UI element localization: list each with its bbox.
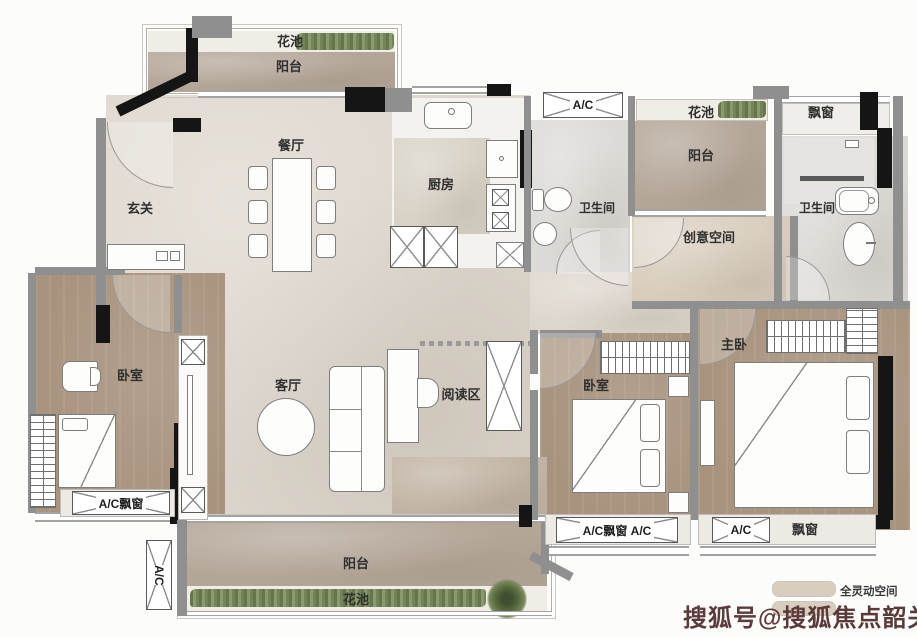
bedroom-left-label: 卧室 — [117, 369, 143, 384]
window-balcony-bottom-rail — [184, 611, 552, 616]
kitchen-label: 厨房 — [428, 178, 454, 193]
washbasin-icon — [843, 222, 875, 266]
wall-kitchen-topright — [487, 84, 511, 96]
reading-label: 阅读区 — [441, 388, 480, 403]
bookshelf — [486, 341, 522, 431]
desk-chair — [90, 367, 101, 386]
counter-knob — [499, 156, 504, 161]
pillow-icon — [846, 376, 870, 420]
flower-bed-top-right-label: 花池 — [688, 106, 714, 121]
sofa — [329, 366, 385, 492]
legend-flex-space-label: 全灵动空间 — [840, 583, 898, 599]
ac-top-label: A/C — [570, 98, 597, 112]
pillow-icon — [640, 404, 660, 442]
pillow-icon — [846, 430, 870, 474]
balcony-top-right-floor — [632, 121, 766, 214]
kitchen-cabinet-hatch — [390, 226, 424, 268]
chair — [316, 166, 336, 190]
chair — [316, 200, 336, 224]
wardrobe — [766, 320, 846, 353]
window-dining-balcony — [198, 90, 346, 98]
wall-entry-bedroom-corner — [96, 305, 110, 343]
ac-unit-top: A/C — [543, 92, 623, 118]
wardrobe — [846, 308, 878, 354]
window-living-balcony — [185, 515, 545, 523]
creative-space-label: 创意空间 — [683, 231, 735, 246]
tv-panel — [187, 375, 193, 475]
floor-plan: A/C A/C飘窗 A/C A/C飘窗 A/C A/C 飘窗 花池 阳台 餐厅 … — [0, 0, 917, 637]
basin-faucet — [866, 242, 876, 244]
ac-left-vertical-label: A/C — [149, 565, 169, 586]
hedge-plants-bottom — [190, 589, 486, 607]
wall-bath-right-left — [774, 96, 782, 302]
pillow-icon — [62, 418, 88, 431]
burner-icon — [492, 189, 509, 206]
bay-window-top-right-label: 飘窗 — [808, 106, 834, 121]
wall-block — [385, 88, 412, 112]
window-bedroom-middle-bottom — [545, 546, 689, 556]
bay-window-bottom-right-label: 飘窗 — [792, 523, 818, 538]
wardrobe — [30, 414, 56, 508]
master-bedroom-label: 主卧 — [721, 338, 747, 353]
ac-bay-left-label: A/C飘窗 — [96, 495, 147, 512]
reading-chair — [417, 378, 439, 408]
shower-divider — [800, 176, 864, 181]
ac-unit-bay-left: A/C飘窗 — [72, 491, 170, 515]
cabinet-hatch — [181, 487, 205, 513]
burner-icon — [492, 212, 509, 229]
living-label: 客厅 — [275, 379, 301, 394]
ac-unit-bottom-right: A/C — [712, 517, 770, 543]
balcony-bottom-label: 阳台 — [343, 557, 369, 572]
cabinet-hatch — [181, 339, 205, 365]
bathtub-inner — [839, 190, 869, 212]
dining-label: 餐厅 — [278, 139, 304, 154]
bathroom-right-label: 卫生间 — [799, 202, 835, 216]
round-table — [257, 398, 315, 456]
balcony-bottom-floor — [185, 522, 547, 586]
tub-knob — [868, 197, 875, 204]
shower-handle — [845, 140, 859, 148]
ac-mid-label: A/C — [631, 524, 652, 538]
kitchen-door — [496, 242, 524, 268]
wall-bedroom-living-1 — [174, 275, 182, 333]
wall-block-tr — [753, 86, 789, 99]
pillow-icon — [640, 449, 660, 487]
wall-hall-bedroom2-b — [530, 390, 538, 520]
window-balcony-top-right — [632, 209, 766, 217]
dining-table — [272, 158, 312, 272]
watermark-sohu: 搜狐号@搜狐焦点韶关站 — [683, 598, 917, 633]
wardrobe — [600, 341, 690, 374]
ac-unit-bay-mid: A/C飘窗 A/C — [556, 517, 678, 543]
wall-master-right — [878, 356, 893, 520]
chair — [248, 166, 268, 190]
wall-block-top — [192, 16, 232, 38]
wall-bedroom2-master — [690, 308, 698, 520]
bathroom-center-label: 卫生间 — [579, 202, 615, 216]
flower-bed-top-left-label: 花池 — [277, 35, 303, 50]
cabinet-detail — [156, 251, 168, 261]
wall-right-outer — [893, 96, 903, 302]
entry-label: 玄关 — [127, 202, 153, 217]
cabinet-detail — [170, 251, 180, 261]
nightstand — [668, 492, 689, 513]
bench — [700, 400, 715, 466]
wall-hall-bedroom2-a — [530, 330, 538, 374]
ac-unit-left-vertical: A/C — [146, 540, 172, 610]
washbasin-icon — [533, 222, 557, 246]
nightstand — [668, 376, 689, 397]
reading-desk — [387, 349, 419, 443]
window-master-bottom — [700, 546, 876, 556]
kitchen-cabinet-hatch — [424, 226, 458, 268]
faucet-icon — [448, 108, 455, 115]
chair — [316, 234, 336, 258]
kitchen-sink-icon — [424, 102, 472, 129]
ac-right-label: A/C — [728, 523, 755, 537]
ac-bay-mid-label: A/C飘窗 — [583, 524, 628, 538]
bedroom-middle-label: 卧室 — [583, 379, 609, 394]
wall-entry-corner — [173, 118, 201, 132]
wall-top-right-1 — [860, 92, 878, 130]
toilet-bowl — [544, 187, 572, 212]
flower-bed-bottom-label: 花池 — [343, 593, 369, 608]
chair — [248, 234, 268, 258]
balcony-top-left-label: 阳台 — [276, 60, 302, 75]
chair — [248, 200, 268, 224]
window-kitchen-top — [412, 86, 488, 94]
hedge-plants-top-left — [296, 33, 394, 50]
legend-swatch-flex-space — [772, 581, 836, 597]
wall-corner-balcony-right — [519, 505, 532, 527]
wall-top-mid — [345, 87, 385, 112]
balcony-top-right-label: 阳台 — [688, 149, 714, 164]
wall-top-right-2 — [877, 128, 892, 188]
wall-kitchen-bath — [524, 96, 531, 272]
hedge-plants-top-right — [718, 101, 766, 118]
wall-bath-balcony — [628, 96, 635, 216]
wall-balcony-bottom-left — [177, 520, 187, 616]
toilet-icon — [532, 189, 544, 211]
wall-left-outer — [96, 118, 106, 308]
